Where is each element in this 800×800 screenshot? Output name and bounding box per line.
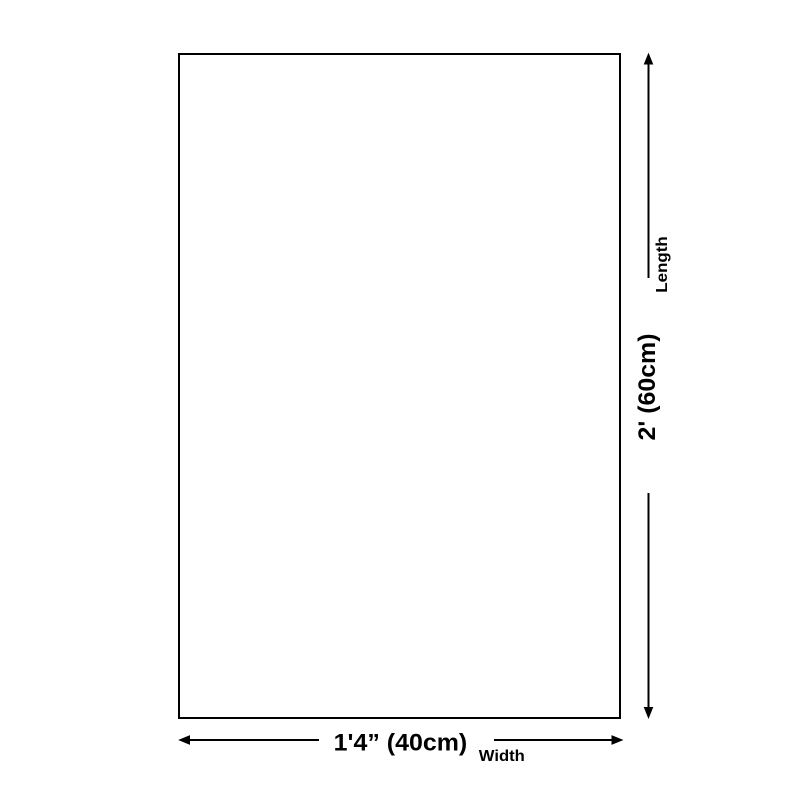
- svg-text:2' (60cm): 2' (60cm): [634, 334, 661, 441]
- svg-text:1'4” (40cm): 1'4” (40cm): [334, 730, 468, 757]
- svg-text:Length: Length: [654, 236, 671, 293]
- svg-text:Width: Width: [479, 748, 525, 765]
